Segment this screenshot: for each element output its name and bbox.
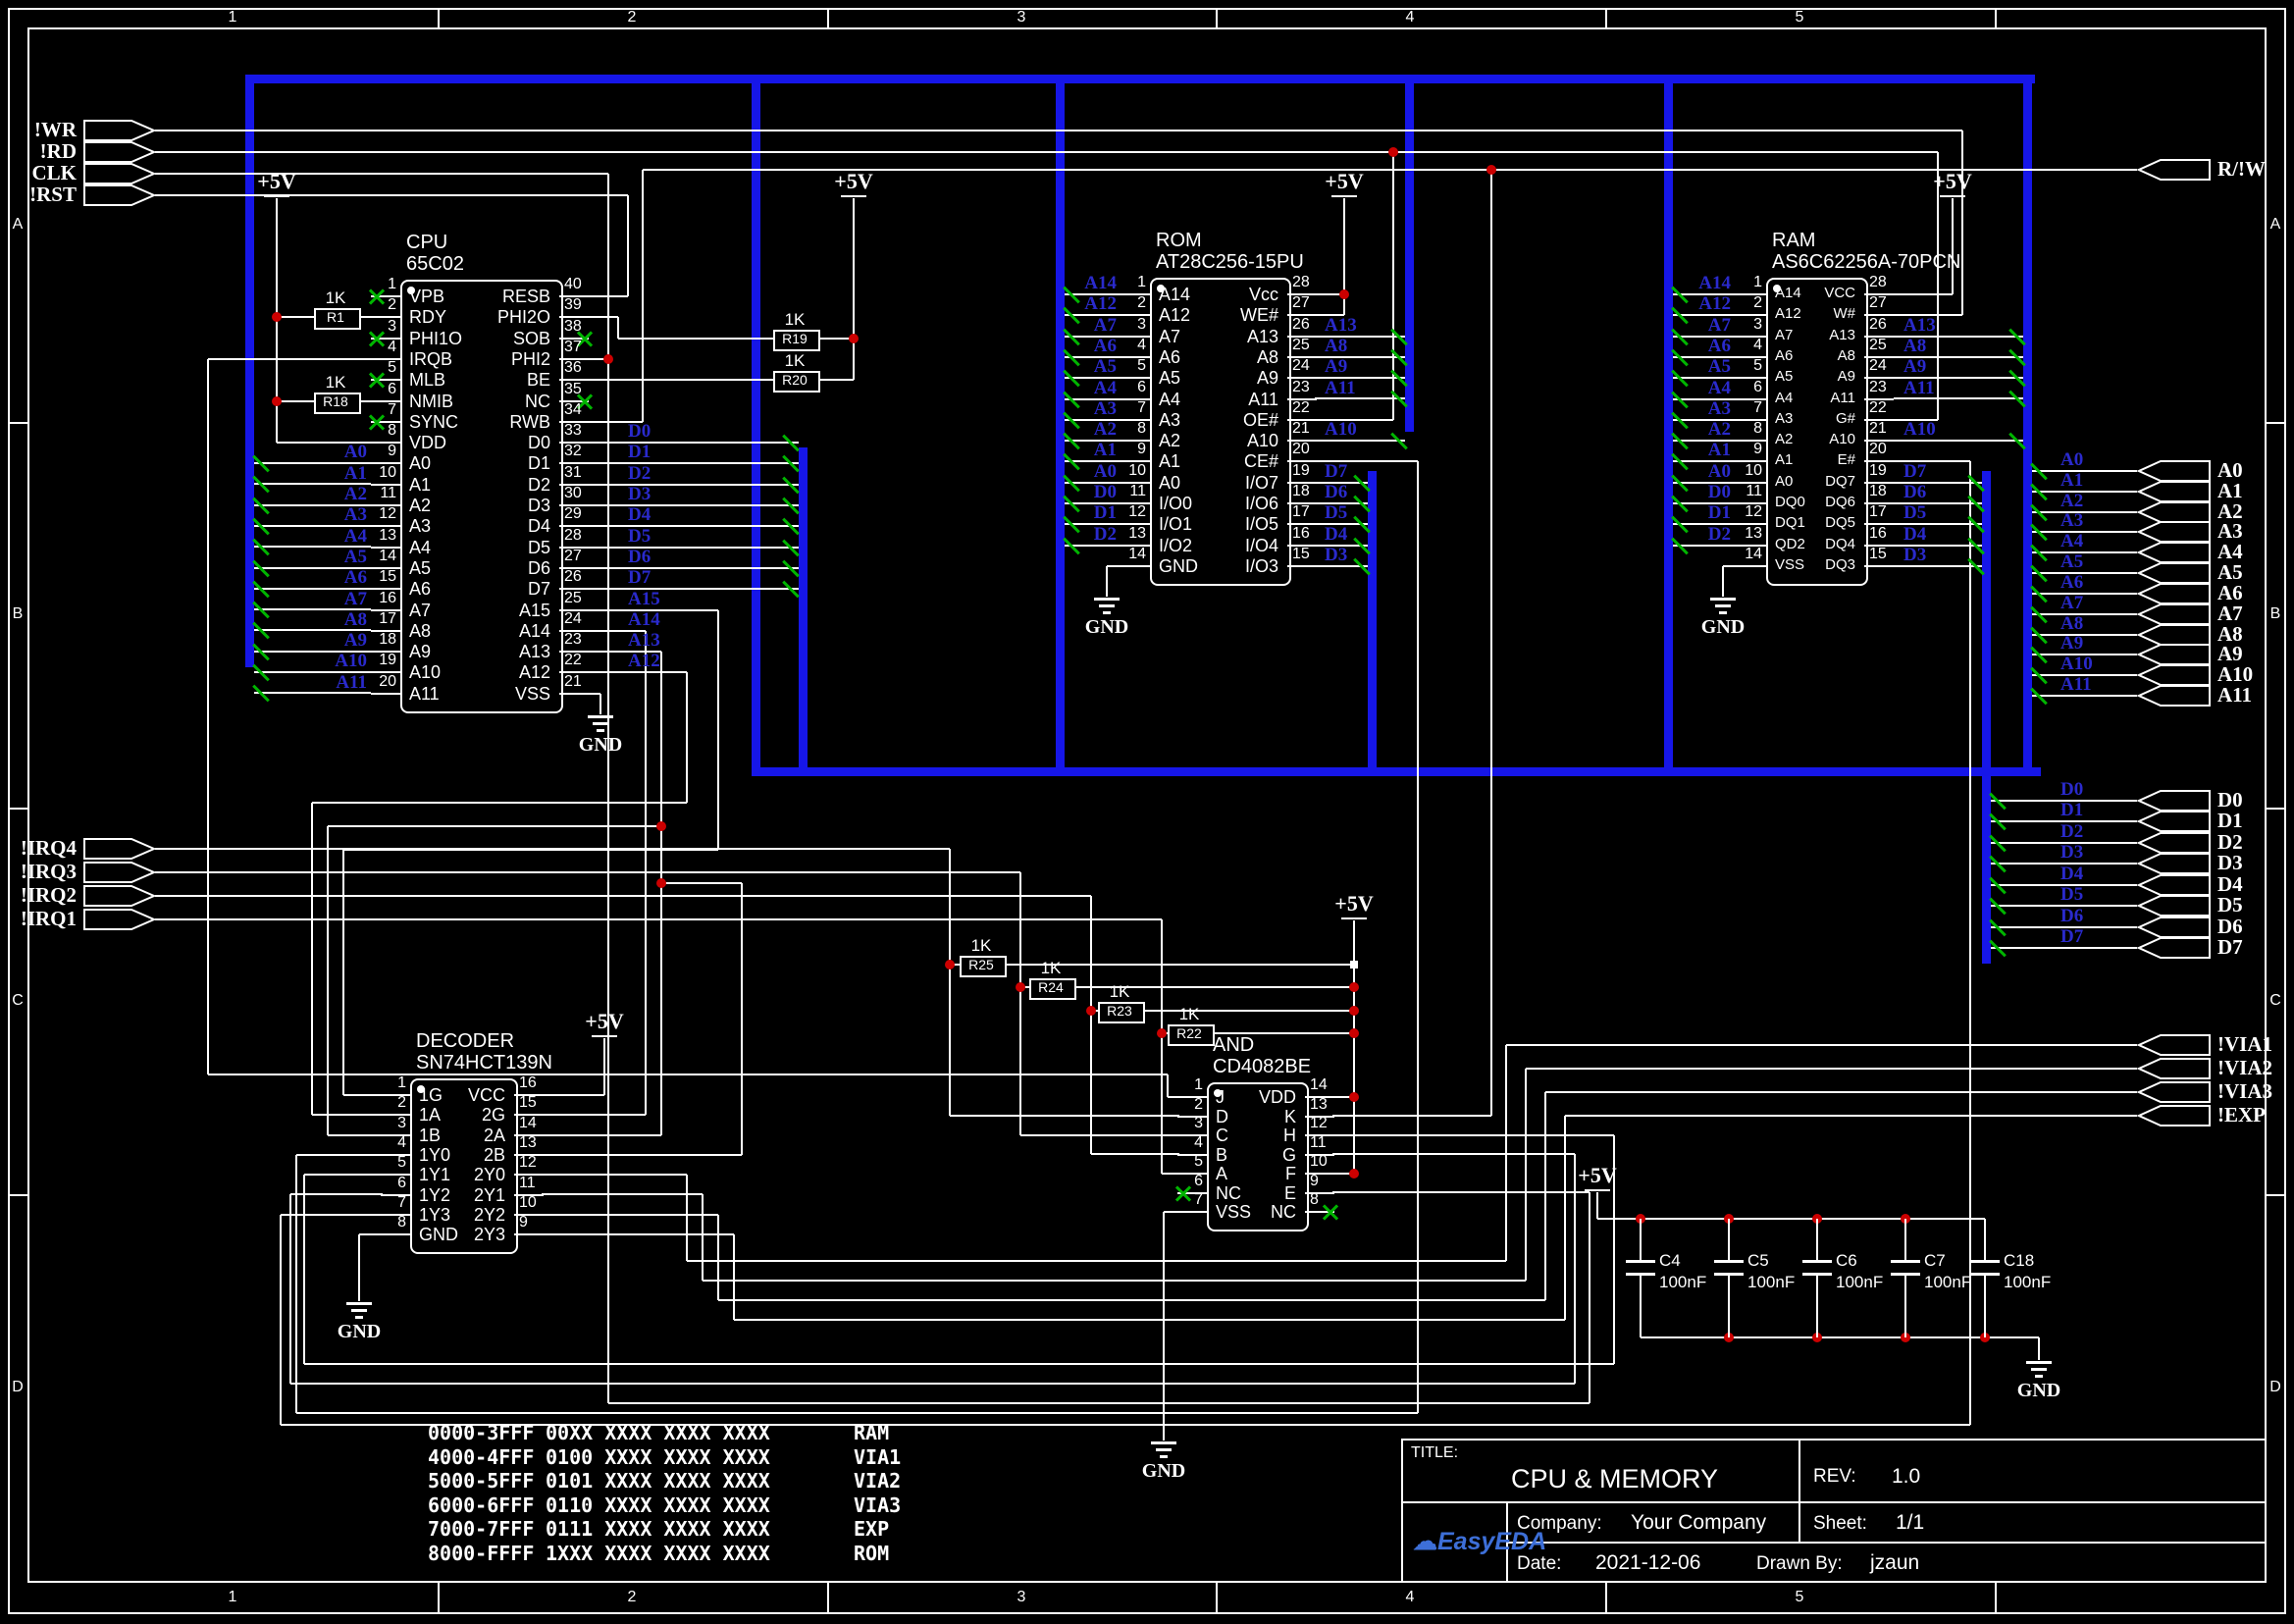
wire[interactable]	[1167, 1074, 1169, 1097]
pin-name: H	[1216, 1126, 1296, 1144]
wire[interactable]	[589, 442, 799, 444]
pin-name: NC	[1216, 1203, 1296, 1221]
wire[interactable]	[1490, 170, 1492, 1116]
wire[interactable]	[2032, 491, 2137, 493]
net-label: A0	[1662, 462, 1731, 481]
wire[interactable]	[277, 400, 314, 402]
wire[interactable]	[816, 379, 854, 381]
vcc-symbol-label: +5V	[1921, 171, 1984, 192]
port-label: !IRQ4	[0, 838, 77, 859]
gnd-symbol[interactable]	[2026, 1361, 2052, 1364]
ruler-row-label: B	[9, 606, 26, 622]
pin-number: 27	[1869, 295, 1887, 311]
wire[interactable]	[1332, 1115, 1491, 1117]
wire[interactable]	[589, 295, 628, 297]
wire[interactable]	[1315, 440, 1405, 442]
wire[interactable]	[280, 1215, 282, 1425]
pin-stub[interactable]	[1737, 565, 1766, 567]
pin-number: 5	[1117, 358, 1146, 374]
wire[interactable]	[312, 802, 687, 804]
wire[interactable]	[1722, 566, 1724, 597]
wire[interactable]	[542, 1094, 604, 1096]
wire[interactable]	[296, 1412, 1418, 1414]
wire[interactable]	[1984, 1219, 1986, 1260]
net-label: A3	[1048, 399, 1117, 418]
wire[interactable]	[342, 850, 344, 1095]
wire[interactable]	[542, 1233, 734, 1235]
wire[interactable]	[1332, 1191, 1590, 1193]
pin-name: PHI2O	[409, 308, 550, 326]
net-label: D3	[628, 485, 651, 503]
wire[interactable]	[1904, 1219, 1906, 1260]
wire[interactable]	[1106, 566, 1108, 597]
wire[interactable]	[853, 198, 855, 380]
wire[interactable]	[155, 151, 1938, 153]
junction-dot	[1349, 1006, 1359, 1016]
wire[interactable]	[328, 825, 661, 827]
resistor-value: 1K	[1168, 1006, 1211, 1022]
wire[interactable]	[589, 462, 799, 464]
port-irq4[interactable]	[82, 837, 157, 861]
pin-number: 17	[1869, 504, 1887, 520]
vcc-symbol[interactable]	[592, 1035, 617, 1037]
wire[interactable]	[304, 1174, 383, 1176]
memmap-name: RAM	[854, 1421, 889, 1444]
wire[interactable]	[1417, 461, 1419, 1413]
wire[interactable]	[1640, 1219, 1642, 1260]
wire[interactable]	[686, 1175, 688, 1261]
wire[interactable]	[2038, 1337, 2040, 1360]
capacitor-C5[interactable]	[1714, 1273, 1744, 1276]
gnd-symbol[interactable]	[1719, 611, 1727, 614]
vcc-symbol[interactable]	[264, 195, 289, 197]
pin-number: 31	[564, 465, 582, 481]
pin-stub[interactable]	[1121, 565, 1150, 567]
wire[interactable]	[1597, 1218, 1985, 1220]
wire[interactable]	[1505, 1045, 1507, 1261]
sheet-frame	[8, 1194, 27, 1196]
wire[interactable]	[542, 1174, 687, 1176]
gnd-symbol[interactable]	[1151, 1441, 1176, 1444]
capacitor-C4[interactable]	[1626, 1260, 1655, 1263]
capacitor-value: 100nF	[2004, 1274, 2051, 1290]
port-d1[interactable]	[2137, 810, 2212, 833]
pin-number: 5	[1173, 1154, 1203, 1170]
pin-name: G#	[1775, 411, 1855, 426]
wire[interactable]	[207, 359, 209, 1074]
wire[interactable]	[603, 1038, 605, 1095]
vcc-symbol-label: +5V	[245, 171, 308, 192]
wire[interactable]	[1961, 131, 1963, 315]
net-label: A10	[1325, 420, 1357, 439]
net-label: D0	[2060, 780, 2083, 799]
capacitor-C6[interactable]	[1802, 1260, 1832, 1263]
memory-map-row: 6000-6FFF0110 XXXX XXXX XXXXVIA3	[428, 1493, 1134, 1518]
pin-name: A13	[1775, 328, 1855, 342]
port-clk[interactable]	[82, 162, 157, 185]
wire[interactable]	[1107, 565, 1121, 567]
bus-wire[interactable]	[2023, 75, 2032, 776]
wire[interactable]	[687, 1260, 1506, 1262]
wire[interactable]	[358, 1234, 360, 1301]
wire[interactable]	[589, 671, 687, 673]
wire[interactable]	[542, 1134, 661, 1136]
capacitor-C7[interactable]	[1891, 1260, 1920, 1263]
ruler-col-label: 2	[617, 1590, 647, 1605]
pin-stub[interactable]	[1864, 565, 1894, 567]
capacitor-C18[interactable]	[1970, 1260, 2000, 1263]
capacitor-C7[interactable]	[1891, 1273, 1920, 1276]
gnd-symbol[interactable]	[1710, 598, 1736, 601]
gnd-symbol[interactable]	[2035, 1375, 2043, 1378]
wire[interactable]	[1894, 440, 2023, 442]
sheet-frame	[1216, 1581, 1218, 1612]
sheet-frame	[1216, 8, 1218, 27]
port-irq1[interactable]	[82, 908, 157, 931]
net-label: A7	[1662, 316, 1731, 335]
wire[interactable]	[2032, 551, 2137, 553]
pin-number: 14	[519, 1116, 537, 1131]
wire[interactable]	[289, 1194, 291, 1384]
pin-stub[interactable]	[371, 693, 400, 695]
memmap-name: VIA2	[854, 1469, 901, 1493]
wire[interactable]	[1984, 1276, 1986, 1337]
memmap-name: EXP	[854, 1517, 889, 1541]
pin-name: W#	[1775, 306, 1855, 321]
pin-number: 2	[377, 1095, 406, 1111]
wire[interactable]	[155, 848, 950, 850]
pin-stub[interactable]	[381, 1233, 410, 1235]
pin-stub[interactable]	[559, 693, 589, 695]
wire[interactable]	[155, 895, 1091, 897]
wire[interactable]	[589, 525, 799, 527]
wire[interactable]	[2032, 593, 2137, 595]
pin-number: 16	[1869, 526, 1887, 542]
wire[interactable]	[208, 358, 373, 360]
wire[interactable]	[608, 1402, 1590, 1404]
bus-wire[interactable]	[245, 75, 2035, 83]
bus-wire[interactable]	[799, 447, 808, 776]
gnd-symbol-label: GND	[2007, 1381, 2070, 1400]
wire[interactable]	[290, 1193, 383, 1195]
wire[interactable]	[618, 338, 773, 340]
pin-number: 15	[519, 1095, 537, 1111]
wire[interactable]	[734, 1319, 1565, 1321]
gnd-symbol[interactable]	[1715, 604, 1731, 607]
wire[interactable]	[2032, 572, 2137, 574]
gnd-symbol[interactable]	[1160, 1455, 1168, 1458]
wire[interactable]	[542, 1193, 703, 1195]
wire[interactable]	[1332, 1153, 1575, 1155]
port-a11[interactable]	[2137, 684, 2212, 707]
wire[interactable]	[1952, 198, 1954, 294]
wire[interactable]	[1589, 1192, 1590, 1403]
wire[interactable]	[290, 1383, 1575, 1385]
gnd-symbol[interactable]	[588, 715, 613, 718]
wire[interactable]	[277, 316, 314, 318]
wire[interactable]	[542, 1214, 718, 1216]
resistor-value: 1K	[773, 311, 816, 328]
pin-number: 28	[1869, 275, 1887, 290]
port-irq3[interactable]	[82, 861, 157, 884]
wire[interactable]	[1816, 1219, 1818, 1260]
ruler-col-label: 1	[218, 10, 247, 26]
net-label: A4	[298, 527, 367, 546]
gnd-symbol[interactable]	[1099, 604, 1115, 607]
wire[interactable]	[155, 918, 1162, 920]
wire[interactable]	[589, 316, 618, 318]
resistor-value: 1K	[1029, 960, 1072, 976]
chip-value: CD4082BE	[1213, 1057, 1311, 1076]
port-irq2[interactable]	[82, 884, 157, 908]
vcc-symbol-label: +5V	[1323, 893, 1385, 915]
bus-wire[interactable]	[1405, 75, 1414, 432]
net-label: D5	[628, 527, 651, 546]
gnd-symbol[interactable]	[351, 1309, 367, 1312]
capacitor-C5[interactable]	[1714, 1260, 1744, 1263]
wire[interactable]	[328, 1134, 383, 1136]
wire[interactable]	[296, 1154, 383, 1156]
wire[interactable]	[304, 1363, 1614, 1365]
net-label: D1	[1662, 503, 1731, 522]
port-rst[interactable]	[82, 183, 157, 207]
pin-number: 6	[377, 1176, 406, 1191]
wire[interactable]	[1640, 1276, 1642, 1337]
wire[interactable]	[741, 883, 743, 1155]
pin-number: 10	[1733, 463, 1762, 479]
pin-stub[interactable]	[1177, 1211, 1207, 1213]
net-label: A1	[1662, 441, 1731, 459]
port-exp[interactable]	[2137, 1104, 2212, 1127]
net-label: A13	[1325, 316, 1357, 335]
sheet-frame	[438, 8, 440, 27]
bus-wire[interactable]	[245, 75, 254, 667]
wire[interactable]	[281, 1214, 383, 1216]
pin-name: 2B	[419, 1146, 505, 1164]
wire[interactable]	[542, 1114, 646, 1116]
gnd-symbol[interactable]	[346, 1302, 372, 1305]
sheet-frame	[8, 808, 27, 810]
wire[interactable]	[589, 588, 799, 590]
pin-name: 2Y3	[419, 1226, 505, 1243]
wire[interactable]	[2032, 613, 2137, 615]
junction-dot	[1086, 1006, 1096, 1016]
wire[interactable]	[686, 672, 688, 803]
gnd-symbol[interactable]	[2031, 1368, 2047, 1371]
capacitor-ref: C7	[1924, 1252, 1946, 1269]
vcc-symbol[interactable]	[1331, 195, 1357, 197]
pin-number: 4	[377, 1135, 406, 1151]
pin-name: CE#	[1159, 452, 1278, 470]
wire[interactable]	[660, 652, 662, 1135]
pin-name: 2Y1	[419, 1186, 505, 1204]
pin-name: WE#	[1159, 306, 1278, 324]
wire[interactable]	[642, 170, 644, 422]
vcc-symbol[interactable]	[841, 195, 866, 197]
wire[interactable]	[155, 130, 1962, 131]
wire[interactable]	[627, 195, 629, 296]
wire[interactable]	[717, 610, 719, 850]
pin-name: A13	[1159, 328, 1278, 345]
wire[interactable]	[1020, 1134, 1179, 1136]
pin-number: 17	[367, 611, 396, 627]
wire[interactable]	[950, 1115, 1179, 1117]
bus-wire[interactable]	[752, 767, 2041, 776]
chip-ref: RAM	[1772, 231, 1815, 250]
pin-stub[interactable]	[514, 1233, 544, 1235]
gnd-symbol-label: GND	[1132, 1461, 1195, 1481]
ruler-col-label: 4	[1395, 10, 1425, 26]
wire[interactable]	[359, 1233, 383, 1235]
wire[interactable]	[1904, 1276, 1906, 1337]
wire[interactable]	[717, 1215, 719, 1300]
bus-wire[interactable]	[1368, 471, 1377, 776]
wire[interactable]	[617, 317, 619, 339]
wire[interactable]	[589, 547, 799, 549]
port-d3[interactable]	[2137, 852, 2212, 875]
capacitor-C18[interactable]	[1970, 1273, 2000, 1276]
wire[interactable]	[1392, 152, 1394, 420]
wire[interactable]	[1506, 1044, 2137, 1046]
wire[interactable]	[1991, 947, 2137, 949]
memmap-name: ROM	[854, 1542, 889, 1565]
wire[interactable]	[1894, 565, 1982, 567]
gnd-symbol[interactable]	[1103, 611, 1111, 614]
gnd-symbol[interactable]	[593, 722, 608, 725]
resistor-ref: R24	[1029, 980, 1072, 994]
capacitor-C6[interactable]	[1802, 1273, 1832, 1276]
wire[interactable]	[1728, 1219, 1730, 1260]
wire[interactable]	[155, 173, 608, 175]
port-rd[interactable]	[82, 140, 157, 164]
wire[interactable]	[702, 1194, 704, 1281]
wire[interactable]	[1816, 1276, 1818, 1337]
wire[interactable]	[661, 882, 742, 884]
gnd-symbol[interactable]	[1094, 598, 1120, 601]
port-rw[interactable]	[2137, 158, 2212, 182]
memmap-bits: 0100 XXXX XXXX XXXX	[546, 1445, 770, 1469]
port-label: !WR	[0, 120, 77, 140]
gnd-symbol[interactable]	[1156, 1448, 1172, 1451]
capacitor-C4[interactable]	[1626, 1273, 1655, 1276]
memory-map-row: 5000-5FFF0101 XXXX XXXX XXXXVIA2	[428, 1469, 1134, 1493]
pin-number: 20	[367, 674, 396, 690]
wire[interactable]	[1163, 1212, 1165, 1441]
vcc-symbol[interactable]	[1585, 1189, 1610, 1191]
capacitor-value: 100nF	[1836, 1274, 1883, 1290]
junction-dot	[656, 821, 666, 831]
capacitor-ref: C4	[1659, 1252, 1681, 1269]
wire[interactable]	[1894, 293, 1953, 295]
wire[interactable]	[1161, 919, 1163, 1174]
wire[interactable]	[1545, 1091, 2137, 1093]
wire[interactable]	[1091, 1153, 1179, 1155]
net-label: A2	[1662, 420, 1731, 439]
net-label: A7	[298, 590, 367, 608]
bus-wire[interactable]	[1982, 471, 1991, 964]
wire[interactable]	[2032, 470, 2137, 472]
wire[interactable]	[589, 504, 799, 506]
wire[interactable]	[589, 484, 799, 486]
wire[interactable]	[949, 849, 951, 1116]
wire[interactable]	[703, 1280, 1526, 1282]
wire[interactable]	[155, 194, 628, 196]
wire[interactable]	[1544, 1092, 1546, 1300]
gnd-symbol[interactable]	[355, 1316, 363, 1319]
port-d5[interactable]	[2137, 894, 2212, 917]
port-wr[interactable]	[82, 119, 157, 142]
wire[interactable]	[1019, 872, 1021, 1135]
wire[interactable]	[1332, 1134, 1614, 1136]
wire[interactable]	[303, 1175, 305, 1364]
wire[interactable]	[542, 1154, 742, 1156]
wire[interactable]	[589, 567, 799, 569]
wire[interactable]	[2032, 634, 2137, 636]
bus-wire[interactable]	[752, 75, 760, 776]
net-label: A14	[628, 610, 660, 629]
wire[interactable]	[1526, 1068, 2137, 1070]
wire[interactable]	[1525, 1069, 1527, 1281]
pin-name: 2Y2	[419, 1206, 505, 1224]
wire[interactable]	[312, 1114, 383, 1116]
wire[interactable]	[2032, 511, 2137, 513]
port-via2[interactable]	[2137, 1057, 2212, 1080]
pin-name: A8	[1159, 348, 1278, 366]
wire[interactable]	[1564, 1116, 1566, 1320]
pin-number: 15	[1292, 547, 1310, 562]
pin-stub[interactable]	[1287, 565, 1317, 567]
junction-dot	[1349, 982, 1359, 992]
pin-number: 26	[1292, 317, 1310, 333]
wire[interactable]	[600, 694, 601, 714]
gnd-symbol[interactable]	[597, 729, 604, 732]
wire[interactable]	[1728, 1276, 1730, 1337]
wire[interactable]	[155, 871, 1020, 873]
pin-number: 12	[1733, 504, 1762, 520]
vcc-symbol[interactable]	[1341, 917, 1367, 919]
memmap-bits: 0101 XXXX XXXX XXXX	[546, 1469, 770, 1493]
pin-number: 32	[564, 444, 582, 459]
wire[interactable]	[1723, 565, 1737, 567]
net-label: D2	[1662, 525, 1731, 544]
port-via1[interactable]	[2137, 1033, 2212, 1057]
chip-ref: AND	[1213, 1035, 1254, 1055]
sheet-frame	[27, 27, 29, 1583]
port-label: D7	[2217, 937, 2243, 958]
wire[interactable]	[589, 379, 773, 381]
wire[interactable]	[718, 1299, 1545, 1301]
wire[interactable]	[2032, 531, 2137, 533]
wire[interactable]	[1090, 896, 1092, 1154]
wire[interactable]	[1596, 1192, 1598, 1219]
pin-name: BE	[409, 371, 550, 389]
wire[interactable]	[733, 1234, 735, 1320]
pin-number: 13	[1733, 526, 1762, 542]
wire[interactable]	[2032, 695, 2137, 697]
net-label: A9	[2060, 634, 2083, 653]
vcc-symbol[interactable]	[1940, 195, 1965, 197]
port-via3[interactable]	[2137, 1080, 2212, 1104]
wire[interactable]	[1565, 1115, 2137, 1117]
pin-number: 2	[1733, 295, 1762, 311]
pin-number: 30	[564, 486, 582, 501]
ruler-row-label: C	[9, 993, 26, 1009]
pin-number: 15	[367, 569, 396, 585]
wire[interactable]	[208, 1074, 1168, 1075]
wire[interactable]	[1574, 1154, 1576, 1384]
pin-number: 18	[367, 632, 396, 648]
port-d7[interactable]	[2137, 936, 2212, 960]
